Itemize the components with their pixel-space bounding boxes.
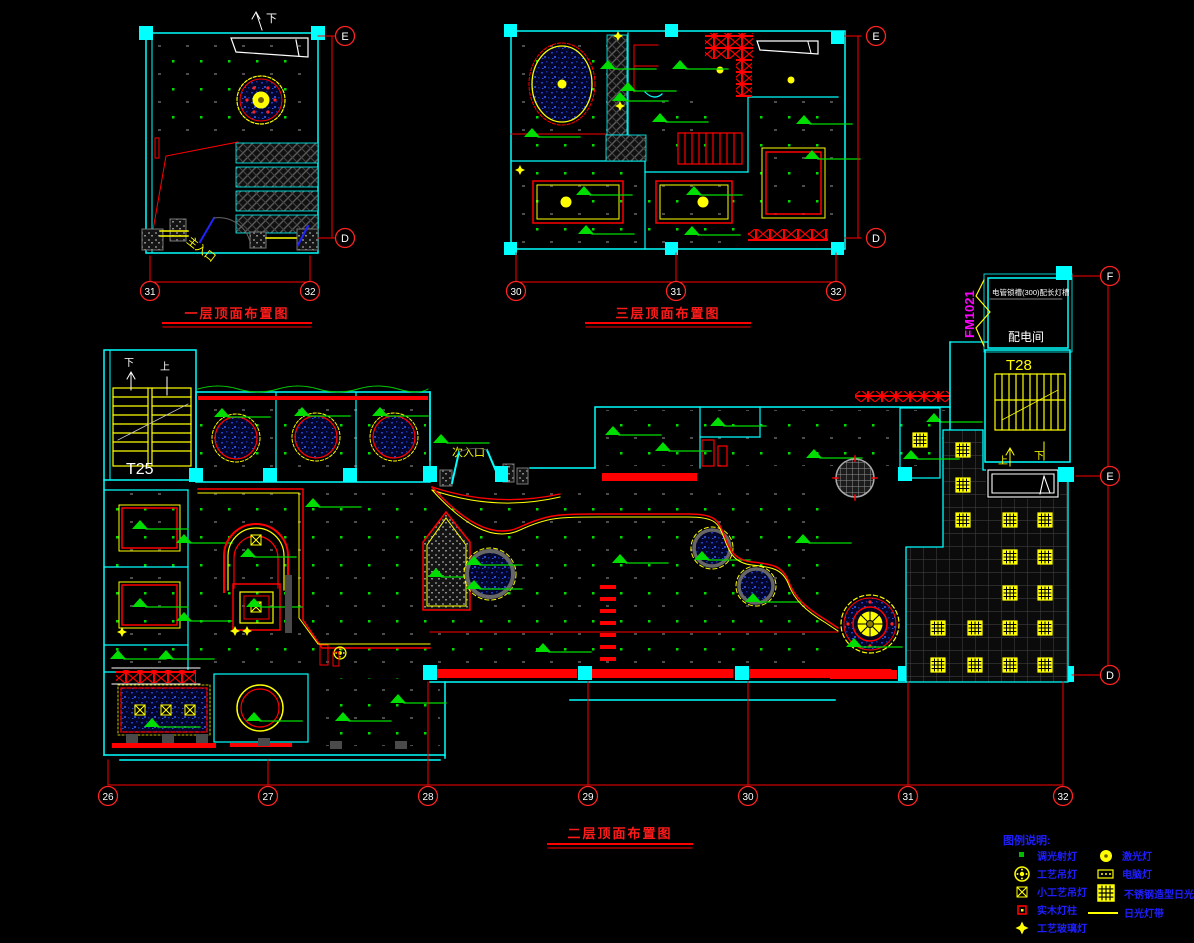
grid-bubble-E: E	[1101, 467, 1120, 486]
grid-bubble-26: 26	[99, 787, 118, 806]
svg-text:工艺玻璃灯: 工艺玻璃灯	[1037, 922, 1087, 935]
svg-text:实木灯柱: 实木灯柱	[1037, 904, 1077, 917]
svg-text:调光射灯: 调光射灯	[1037, 850, 1077, 863]
grid-bubble-32: 32	[1054, 787, 1073, 806]
svg-text:不锈钢造型日光灯: 不锈钢造型日光灯	[1124, 888, 1194, 901]
gray-ceiling-bar	[285, 575, 292, 633]
svg-text:32: 32	[830, 287, 842, 298]
plan-second-title: 二层顶面布置图	[567, 826, 672, 841]
svg-text:32: 32	[1057, 792, 1069, 803]
green-square-icon	[1019, 852, 1024, 857]
grid-bubble-28: 28	[419, 787, 438, 806]
grid-bubble-F: F	[1101, 267, 1120, 286]
stair-t25-label: T25	[126, 461, 154, 478]
svg-text:26: 26	[102, 792, 114, 803]
svg-text:D: D	[341, 233, 349, 245]
svg-text:E: E	[1106, 471, 1113, 483]
svg-text:30: 30	[742, 792, 754, 803]
grid-bubble-D: D	[867, 229, 886, 248]
up-label: 上	[998, 455, 1008, 467]
grid-bubble-E: E	[336, 27, 355, 46]
svg-text:29: 29	[582, 792, 594, 803]
legend-item-laser-lamp: 激光灯	[1100, 850, 1152, 863]
plan-third-title: 三层顶面布置图	[615, 306, 720, 321]
legend-item-small-art-chandelier: 小工艺吊灯	[1017, 886, 1087, 899]
svg-text:32: 32	[304, 287, 316, 298]
circle-ceiling-feature	[212, 413, 418, 462]
svg-text:激光灯: 激光灯	[1122, 850, 1152, 863]
stair-hatch	[607, 35, 627, 135]
svg-text:F: F	[1107, 271, 1114, 283]
grid-bubble-29: 29	[579, 787, 598, 806]
svg-text:日光灯带: 日光灯带	[1124, 907, 1164, 920]
column-marker	[139, 26, 153, 40]
laser-lamp	[561, 197, 572, 208]
svg-text:31: 31	[144, 287, 156, 298]
grid-bubble-32: 32	[301, 282, 320, 301]
legend-title: 图例说明:	[1003, 833, 1051, 847]
cad-ceiling-plan-drawing: 下 主入口	[0, 0, 1194, 943]
ellipse-ceiling-feature	[529, 43, 595, 125]
grid-bubble-D: D	[1101, 666, 1120, 685]
grid-bubble-E: E	[867, 27, 886, 46]
svg-text:电脑灯: 电脑灯	[1122, 868, 1152, 881]
yellow-grid-square-icon	[1098, 885, 1114, 901]
svg-text:D: D	[872, 233, 880, 245]
svg-text:小工艺吊灯: 小工艺吊灯	[1036, 886, 1087, 899]
svg-text:27: 27	[262, 792, 274, 803]
svg-text:28: 28	[422, 792, 434, 803]
red-lattice	[705, 33, 753, 59]
svg-text:31: 31	[670, 287, 682, 298]
grid-bubble-D: D	[336, 229, 355, 248]
ceiling-note: 电管锁槽(300)配长灯槽	[992, 287, 1070, 297]
svg-text:E: E	[872, 31, 879, 43]
grid-bubble-30: 30	[507, 282, 526, 301]
grid-bubble-27: 27	[259, 787, 278, 806]
yellow-x-square-icon	[1017, 887, 1027, 897]
up-label: 上	[160, 361, 170, 373]
svg-text:31: 31	[902, 792, 914, 803]
fire-door-label: FM1021	[962, 290, 977, 338]
laser-lamp	[698, 197, 709, 208]
grid-bubble-31: 31	[667, 282, 686, 301]
svg-text:30: 30	[510, 287, 522, 298]
svg-text:D: D	[1106, 670, 1114, 682]
grid-bubble-31: 31	[141, 282, 160, 301]
down-label: 下	[124, 358, 134, 369]
stair-t28-label: T28	[1006, 357, 1032, 374]
power-room-label: 配电间	[1008, 330, 1044, 344]
grid-bubble-32: 32	[827, 282, 846, 301]
svg-text:工艺吊灯: 工艺吊灯	[1037, 868, 1077, 881]
grid-bubble-30: 30	[739, 787, 758, 806]
grid-bubble-31: 31	[899, 787, 918, 806]
down-label: 下	[1034, 451, 1044, 462]
plan-first-title: 一层顶面布置图	[184, 306, 289, 321]
stair-direction-label: 下	[266, 13, 277, 25]
yellow-ring-cross-icon	[1015, 867, 1029, 881]
svg-text:E: E	[341, 31, 348, 43]
column-marker	[311, 26, 325, 40]
